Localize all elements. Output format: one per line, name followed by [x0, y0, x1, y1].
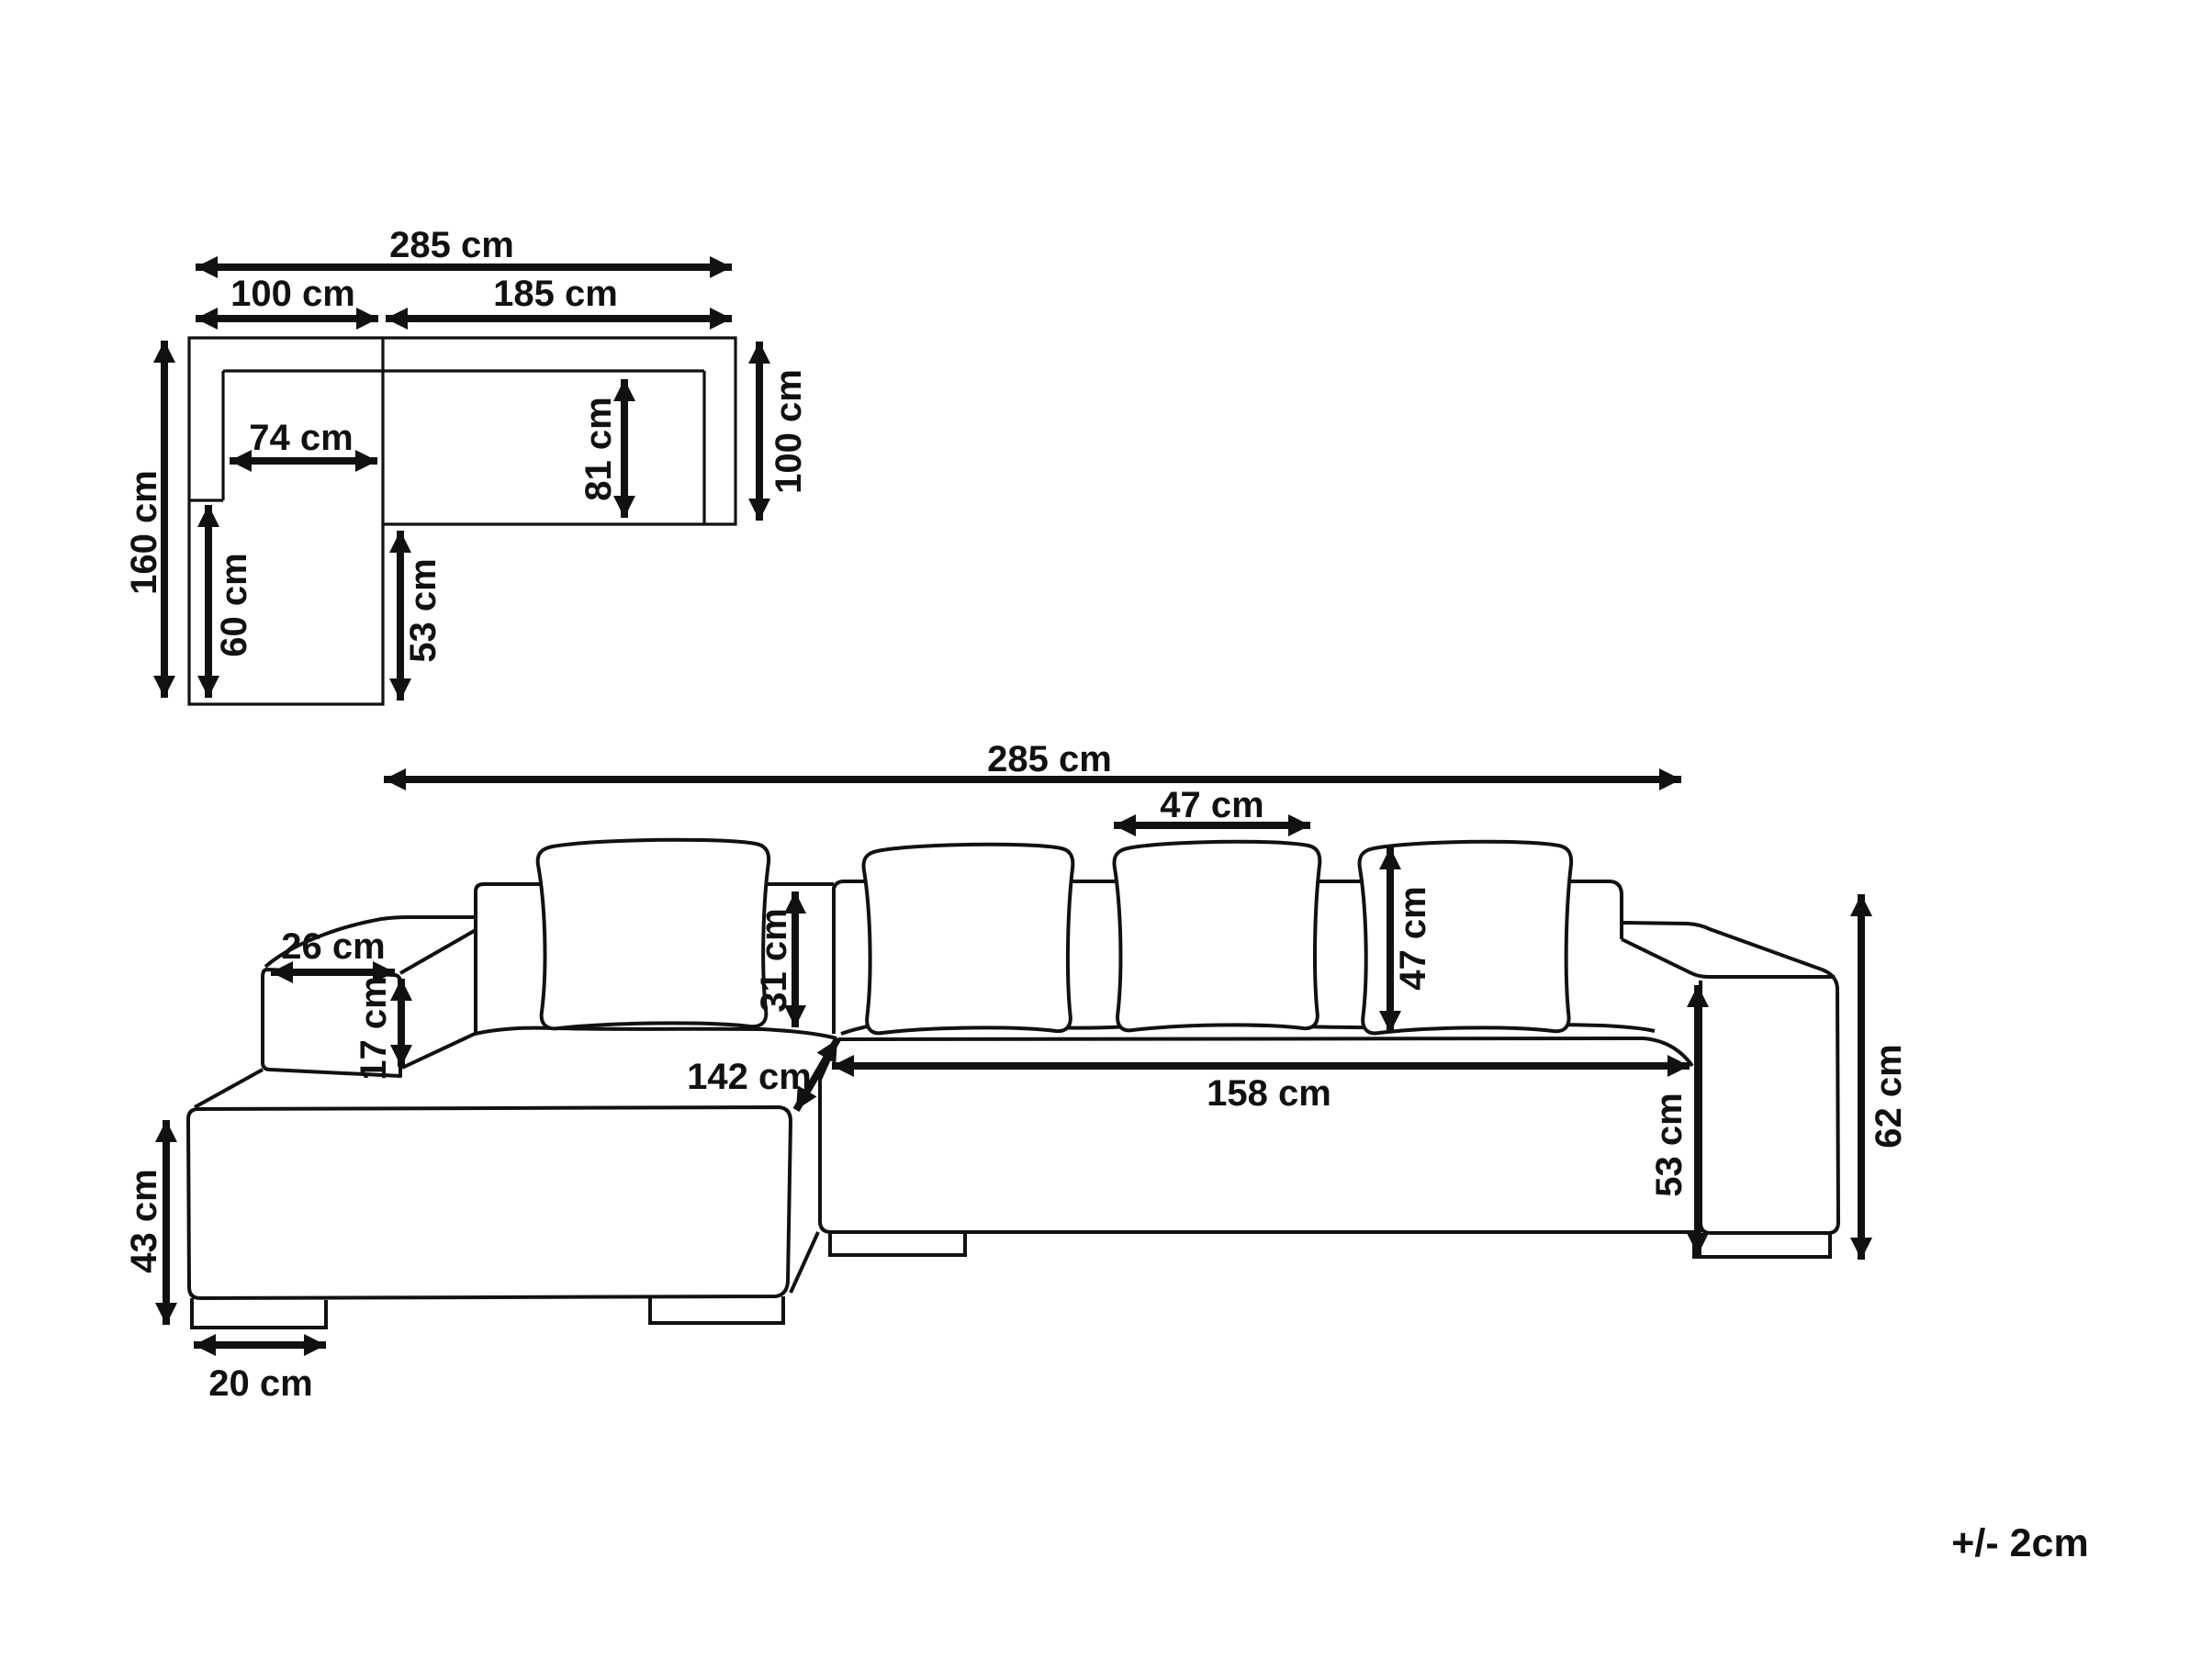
svg-text:26 cm: 26 cm	[281, 926, 385, 967]
svg-text:31 cm: 31 cm	[754, 908, 794, 1012]
svg-text:47 cm: 47 cm	[1160, 785, 1263, 825]
svg-text:74 cm: 74 cm	[249, 418, 353, 458]
svg-text:160 cm: 160 cm	[124, 470, 164, 595]
svg-text:20 cm: 20 cm	[208, 1363, 312, 1404]
svg-text:43 cm: 43 cm	[124, 1169, 164, 1272]
svg-text:17 cm: 17 cm	[354, 976, 394, 1080]
svg-text:285 cm: 285 cm	[987, 739, 1112, 779]
svg-text:62 cm: 62 cm	[1869, 1044, 1909, 1148]
svg-text:60 cm: 60 cm	[214, 553, 254, 656]
svg-text:285 cm: 285 cm	[389, 225, 514, 265]
svg-text:47 cm: 47 cm	[1393, 886, 1433, 990]
svg-text:158 cm: 158 cm	[1207, 1073, 1331, 1114]
svg-text:53 cm: 53 cm	[1649, 1093, 1690, 1196]
svg-text:100 cm: 100 cm	[230, 274, 355, 314]
svg-text:53 cm: 53 cm	[403, 558, 444, 662]
svg-text:81 cm: 81 cm	[578, 397, 619, 500]
svg-text:185 cm: 185 cm	[493, 274, 618, 314]
svg-text:+/- 2cm: +/- 2cm	[1951, 1521, 2088, 1565]
svg-text:142 cm: 142 cm	[687, 1057, 812, 1097]
svg-text:100 cm: 100 cm	[769, 369, 809, 494]
